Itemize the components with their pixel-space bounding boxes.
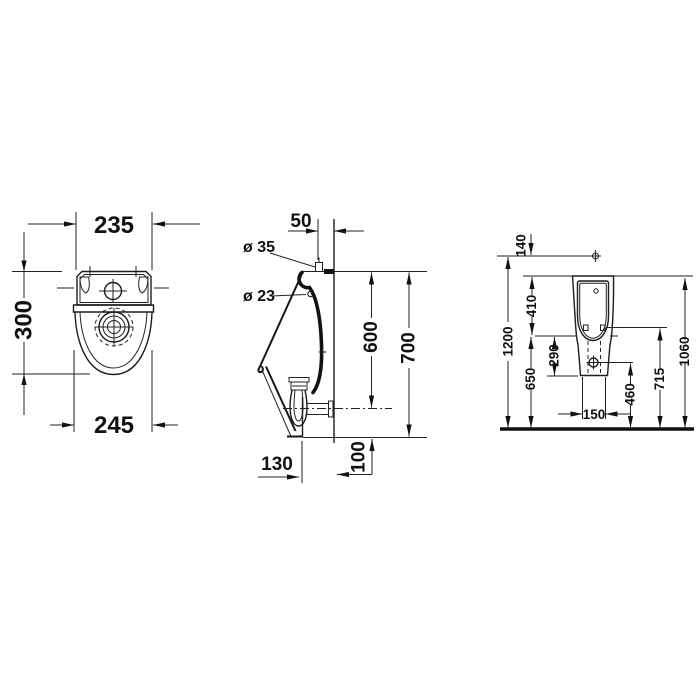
urinal-profile: [299, 273, 322, 393]
dim-label-drain-height: 460: [623, 383, 638, 406]
dim-label-top-height: 1060: [677, 336, 692, 366]
urinal-dimension-drawing: 235 300: [0, 0, 700, 700]
fixing-mark-left: [584, 325, 589, 331]
dim-label-supply-height: 1200: [501, 326, 516, 356]
dim-label-total-height: 700: [399, 332, 420, 364]
dim-label-rim-height: 650: [523, 368, 538, 391]
technical-drawing-page: 235 300: [0, 0, 700, 700]
wall-gasket: [324, 269, 334, 274]
dim-label-plan-depth: 300: [11, 300, 38, 340]
dim-label-height-to-outlet: 600: [361, 321, 382, 353]
dim-label-base-depth: 130: [261, 454, 293, 475]
dim-label-plan-top-width: 235: [94, 212, 134, 239]
dim-label-supply-gap: 140: [514, 234, 529, 257]
dim-label-top-to-rim: 410: [524, 295, 539, 318]
dim-label-wall-offset: 50: [290, 211, 311, 232]
siphon-trap: [289, 378, 333, 427]
dim-label-rim-to-bottom: 290: [547, 344, 562, 367]
dim-label-hole-dia: ø 23: [243, 288, 275, 305]
mount-slot-right: [139, 277, 148, 293]
dim-label-fixing-spacing: 150: [583, 407, 606, 422]
inlet-spigot: [316, 263, 323, 272]
side-view: 50 ø 35 ø 23: [243, 211, 427, 483]
dim-label-fixing-height: 715: [652, 367, 667, 390]
mount-slot-left: [80, 277, 89, 293]
dim-label-below-outlet: 100: [349, 441, 370, 473]
plan-view: 235 300: [11, 212, 201, 439]
front-view: 150 1200 140 410 290 650 460 715 1060: [497, 234, 694, 429]
spreader-hole: [594, 289, 598, 293]
dim-label-plan-bowl-width: 245: [94, 412, 134, 439]
